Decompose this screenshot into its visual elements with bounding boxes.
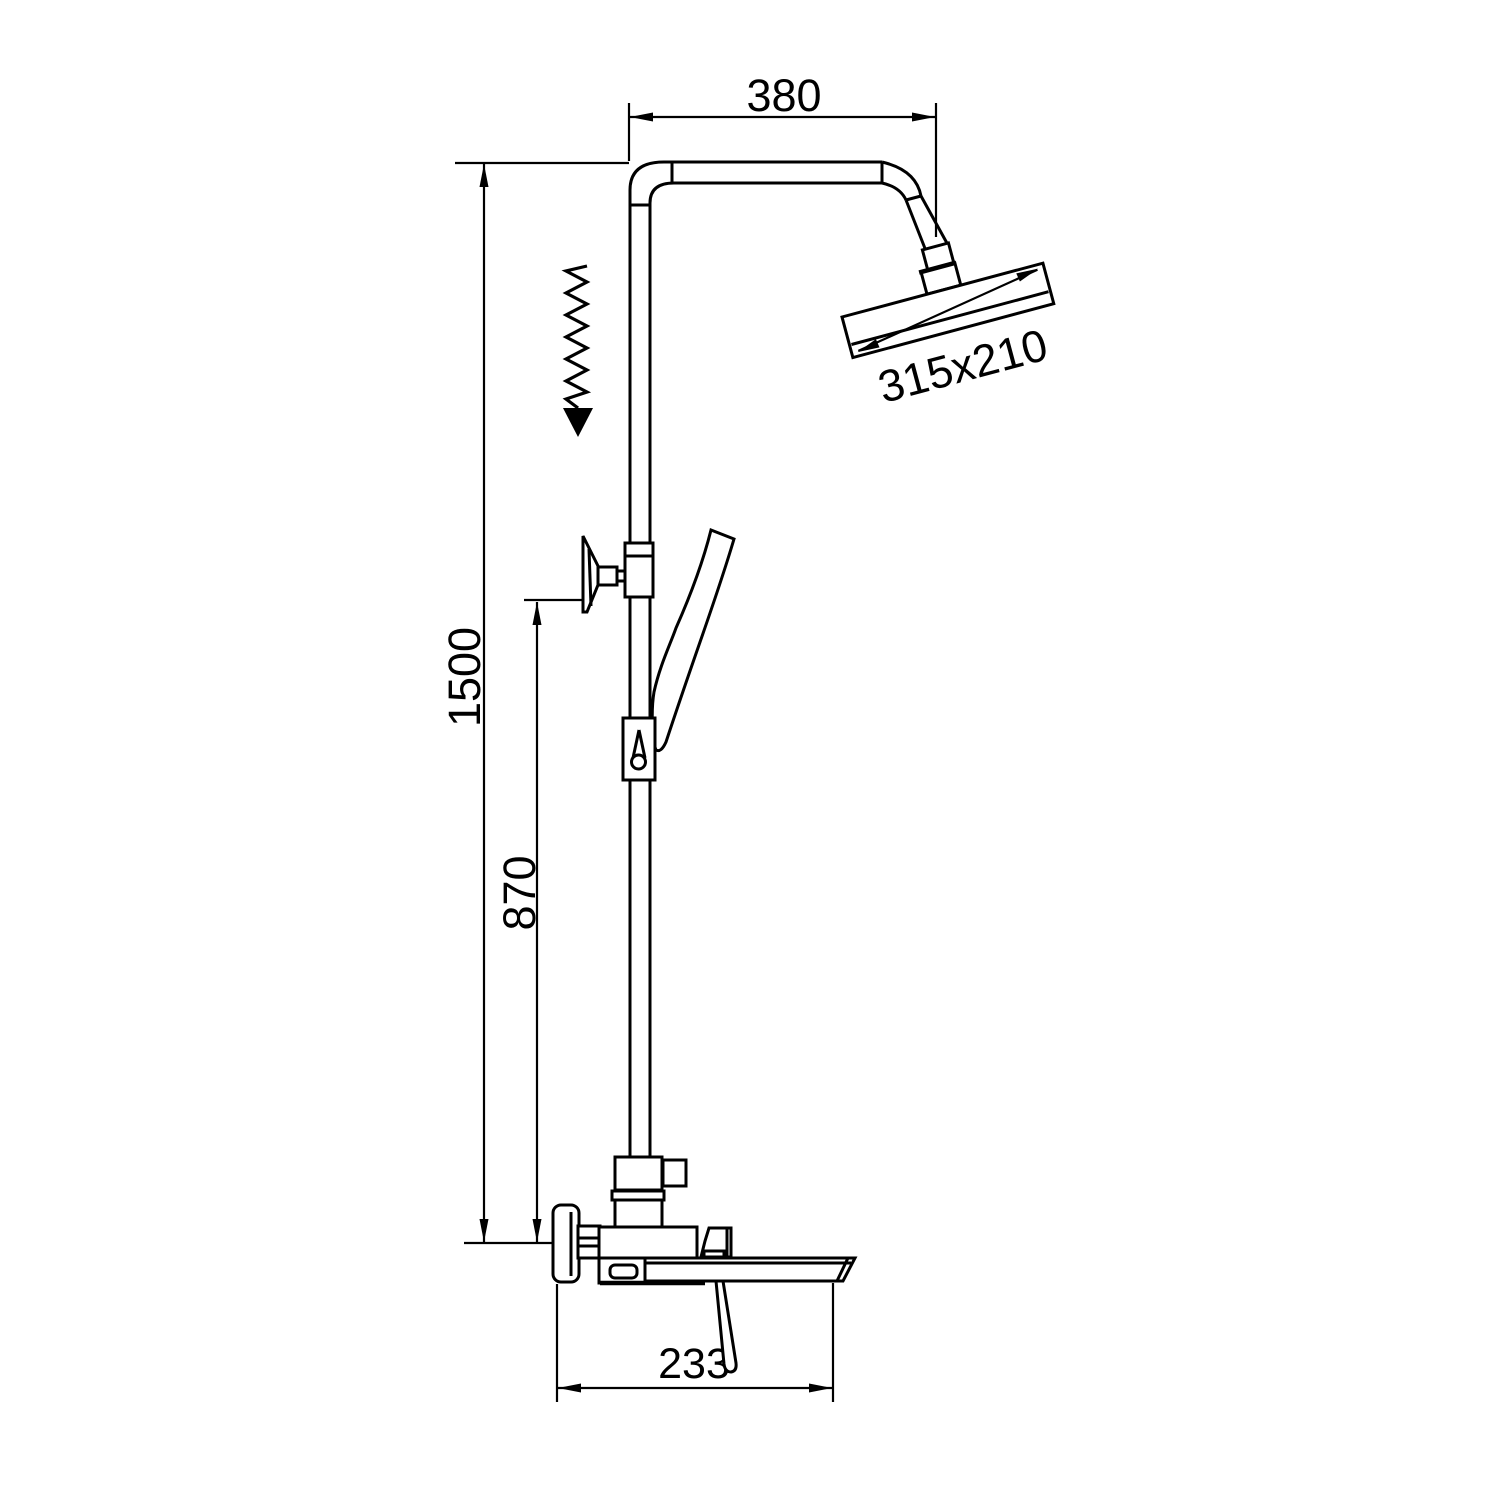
angled-arm-right-edge: [921, 196, 948, 245]
arrowhead-left-icon: [630, 113, 653, 122]
arrowhead-right-icon: [912, 113, 935, 122]
slider-cone-inner-line: [589, 549, 591, 606]
dimension-233: 233: [557, 1283, 833, 1402]
drawing-canvas: 380 1500 870 233: [0, 0, 1500, 1500]
down-arrowhead-icon: [563, 408, 593, 437]
wall-flange: [553, 1205, 579, 1282]
slider-bracket: [583, 536, 653, 612]
height-adjust-indicator: [563, 266, 593, 437]
arrowhead-down-icon: [480, 1219, 489, 1242]
keyhole-circle: [632, 755, 646, 769]
hand-shower-wand: [652, 530, 734, 751]
slider-knob-square: [598, 567, 617, 585]
right-bend-seam: [906, 196, 921, 200]
hand-shower-hook: [623, 718, 655, 780]
shower-technical-drawing: 380 1500 870 233: [0, 0, 1500, 1500]
diverter-knob: [610, 1265, 637, 1278]
right-bend-inner: [882, 183, 906, 200]
right-bend-outer: [882, 162, 921, 196]
dim-233-label: 233: [658, 1340, 730, 1388]
mixer-body: [599, 1227, 697, 1258]
zigzag-spring-icon: [566, 266, 587, 408]
arrowhead-up-icon: [533, 602, 542, 625]
mixer-handle-foot: [704, 1251, 724, 1257]
connector-side-port: [663, 1160, 686, 1186]
dim-1500-label: 1500: [439, 627, 490, 727]
dimension-870: 870: [494, 600, 584, 1242]
arrowhead-down-icon: [533, 1219, 542, 1242]
dimension-380: 380: [629, 70, 936, 237]
dim-380-label: 380: [746, 70, 821, 121]
mixer-neck: [615, 1200, 662, 1227]
dim-870-label: 870: [494, 855, 545, 930]
arrowhead-left-icon: [558, 1384, 581, 1393]
arrowhead-right-icon: [809, 1384, 832, 1393]
flange-nut: [578, 1226, 600, 1258]
hook-plate: [623, 718, 655, 780]
arrowhead-up-icon: [480, 164, 489, 187]
slider-collar: [625, 543, 653, 597]
pipe-connector-block: [615, 1157, 662, 1190]
angled-arm-left-edge: [906, 200, 926, 251]
dimension-1500: 1500: [439, 163, 629, 1243]
rain-shower-head-group: 315x210: [831, 221, 1070, 418]
tub-spout: [645, 1258, 855, 1281]
